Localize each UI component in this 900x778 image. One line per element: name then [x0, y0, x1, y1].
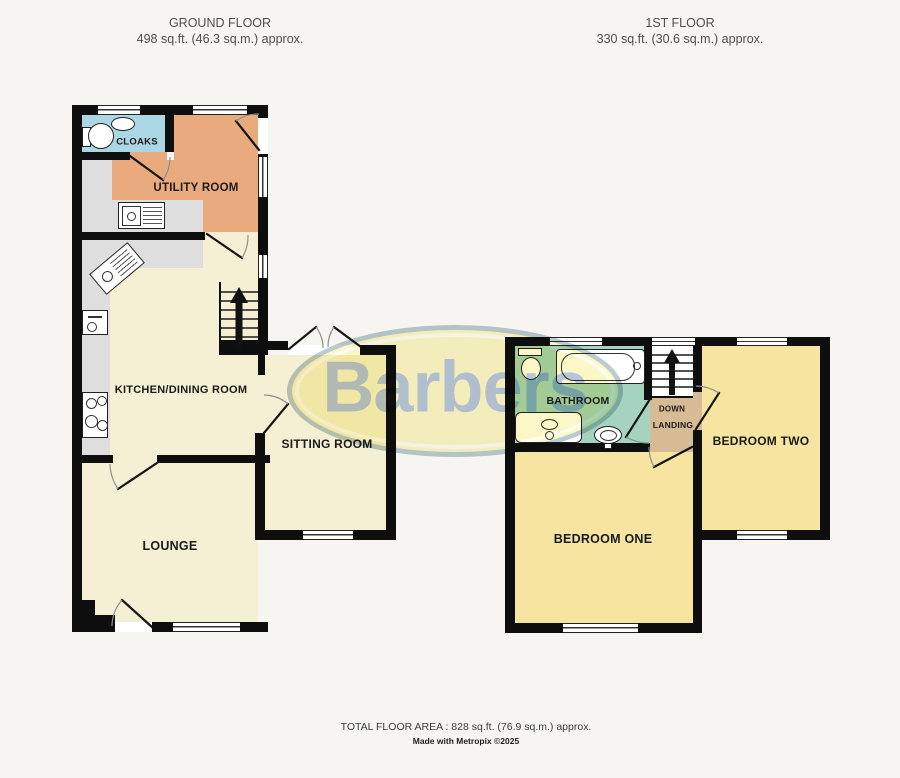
wall [268, 341, 288, 350]
room-label-kitchen: KITCHEN/DINING ROOM [115, 384, 247, 396]
window [563, 623, 638, 633]
metropix-credit: Made with Metropix ©2025 [166, 736, 766, 746]
wall [644, 346, 652, 400]
door-opening [130, 152, 167, 160]
ground-floor-header: GROUND FLOOR 498 sq.ft. (46.3 sq.m.) app… [70, 16, 370, 47]
wall [258, 105, 268, 118]
room-label-bathroom: BATHROOM [546, 395, 609, 407]
window [173, 622, 240, 632]
wall [505, 623, 563, 633]
door-opening [693, 390, 702, 430]
wall [258, 197, 268, 255]
basin-icon [594, 426, 622, 444]
shower-control-icon [541, 419, 558, 430]
stairs-first-floor [650, 346, 693, 396]
first-floor-title: 1ST FLOOR [530, 16, 830, 32]
door-opening [258, 375, 275, 433]
toilet-cistern-icon [518, 348, 542, 356]
bathtub-inner-icon [561, 353, 635, 381]
wall [219, 340, 258, 355]
wall [353, 530, 396, 540]
wall [72, 105, 98, 115]
wall [258, 355, 265, 375]
stair-edge [219, 282, 221, 340]
room-label-lounge: LOUNGE [143, 539, 198, 553]
drain-icon [127, 212, 136, 221]
wall [505, 443, 650, 452]
footer: TOTAL FLOOR AREA : 828 sq.ft. (76.9 sq.m… [166, 721, 766, 746]
burner-icon [97, 396, 107, 406]
drain-icon [545, 431, 554, 440]
room-label-cloaks: CLOAKS [116, 137, 158, 148]
sink-unit-icon [118, 202, 165, 229]
basin-icon [111, 117, 135, 131]
stair-edge [650, 396, 693, 398]
wall [820, 337, 830, 540]
window [737, 530, 787, 540]
counter-area [82, 160, 112, 232]
window [193, 105, 247, 115]
door-opening [113, 455, 157, 463]
wall [140, 105, 193, 115]
wall [152, 622, 173, 632]
wall [72, 105, 82, 632]
wall [386, 345, 396, 540]
window [652, 337, 695, 346]
wall [165, 115, 174, 152]
drain-icon [100, 269, 115, 284]
room-label-utility: UTILITY ROOM [153, 182, 238, 194]
bathtub-icon [556, 349, 645, 384]
wall [693, 345, 702, 392]
porch-recess [72, 615, 115, 632]
front-door-opening [115, 622, 152, 632]
first-floor-header: 1ST FLOOR 330 sq.ft. (30.6 sq.m.) approx… [530, 16, 830, 47]
door-opening [258, 118, 268, 154]
wall [638, 623, 702, 633]
ground-floor-area: 498 sq.ft. (46.3 sq.m.) approx. [70, 32, 370, 48]
toilet-icon [88, 123, 114, 149]
room-label-landing: LANDING [653, 420, 693, 430]
burner-icon [97, 420, 108, 431]
window [258, 255, 268, 278]
first-floor-area: 330 sq.ft. (30.6 sq.m.) approx. [530, 32, 830, 48]
window [550, 337, 602, 346]
window [258, 157, 268, 197]
room-label-sitting: SITTING ROOM [282, 437, 373, 451]
french-door-opening [288, 345, 360, 355]
floorplan-page: GROUND FLOOR 498 sq.ft. (46.3 sq.m.) app… [0, 0, 900, 778]
wall [72, 232, 205, 240]
shower-icon [515, 412, 582, 443]
window [98, 105, 140, 115]
door-opening [205, 232, 258, 240]
wall [505, 337, 515, 633]
burner-icon [86, 398, 97, 409]
basin-pedestal-icon [604, 443, 612, 449]
wall [240, 622, 268, 632]
window [303, 530, 353, 540]
toilet-icon [521, 357, 541, 380]
window [737, 337, 787, 346]
appliance-dial-icon [87, 322, 97, 332]
basin-bowl-icon [600, 430, 617, 441]
hob-icon [82, 392, 108, 438]
wall [255, 530, 303, 540]
drainer-icon [143, 207, 162, 224]
room-label-bedroom-two: BEDROOM TWO [713, 434, 810, 448]
ground-floor-title: GROUND FLOOR [70, 16, 370, 32]
room-label-bedroom-one: BEDROOM ONE [554, 532, 653, 546]
wall [82, 152, 130, 160]
wall [787, 530, 830, 540]
sink-bowl-icon [122, 206, 141, 226]
wall [157, 455, 270, 463]
wall [602, 337, 652, 346]
wall [255, 433, 265, 530]
appliance-handle-icon [88, 316, 102, 318]
wall [258, 278, 268, 355]
tap-icon [633, 362, 641, 370]
wall [72, 455, 113, 463]
total-floor-area: TOTAL FLOOR AREA : 828 sq.ft. (76.9 sq.m… [166, 721, 766, 733]
wall [693, 530, 737, 540]
room-label-down: DOWN [659, 405, 685, 414]
appliance-icon [82, 310, 108, 335]
